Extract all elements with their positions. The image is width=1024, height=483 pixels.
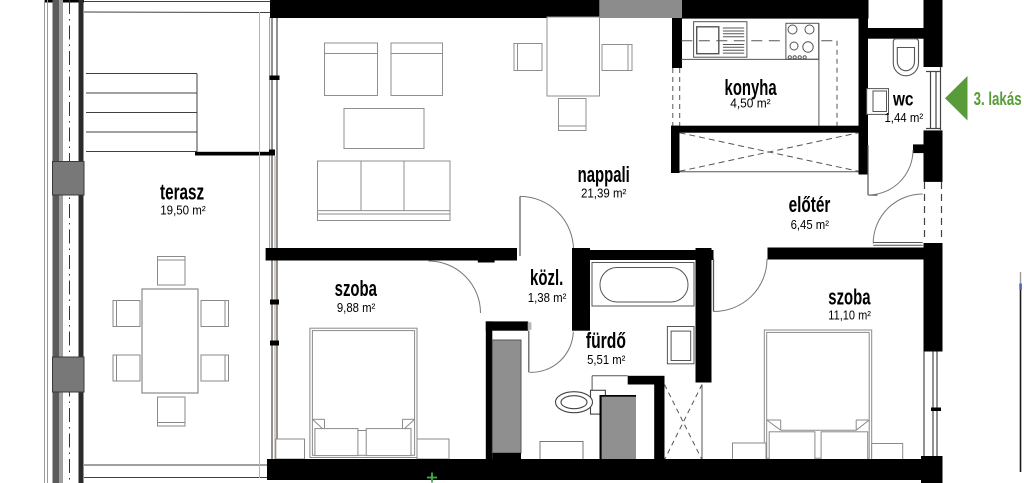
svg-text:19,50 m²: 19,50 m²	[160, 203, 206, 218]
svg-text:5,51 m²: 5,51 m²	[587, 352, 626, 367]
svg-text:1,38 m²: 1,38 m²	[528, 290, 567, 305]
svg-text:közl.: közl.	[530, 265, 563, 290]
svg-text:szoba: szoba	[828, 284, 871, 309]
svg-text:3. lakás: 3. lakás	[974, 89, 1022, 109]
svg-text:1,44 m²: 1,44 m²	[884, 110, 923, 125]
svg-text:9,88 m²: 9,88 m²	[337, 300, 376, 315]
svg-text:21,39 m²: 21,39 m²	[581, 186, 627, 201]
svg-text:terasz: terasz	[160, 180, 204, 205]
svg-text:nappali: nappali	[578, 162, 630, 187]
svg-text:szoba: szoba	[335, 276, 378, 301]
svg-text:11,10 m²: 11,10 m²	[828, 308, 871, 323]
svg-text:6,45 m²: 6,45 m²	[791, 217, 830, 232]
svg-text:előtér: előtér	[789, 192, 831, 217]
svg-text:fürdő: fürdő	[586, 328, 626, 353]
svg-text:4,50 m²: 4,50 m²	[730, 96, 771, 111]
svg-text:wc: wc	[892, 90, 914, 111]
